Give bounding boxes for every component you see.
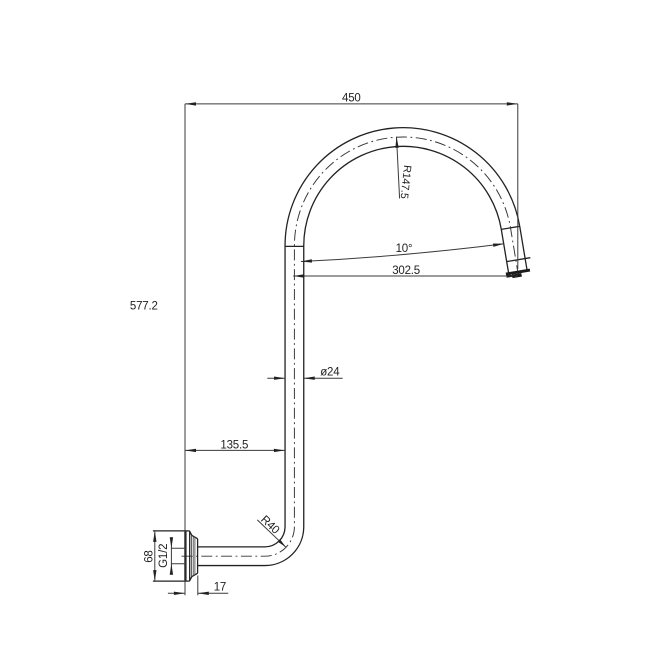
svg-text:450: 450 <box>342 93 361 105</box>
svg-text:G1/2: G1/2 <box>158 544 170 568</box>
svg-text:135.5: 135.5 <box>220 439 248 451</box>
svg-text:302.5: 302.5 <box>392 265 420 277</box>
svg-text:577.2: 577.2 <box>130 301 158 313</box>
svg-text:68: 68 <box>143 550 155 562</box>
svg-text:17: 17 <box>214 581 226 593</box>
svg-text:10°: 10° <box>396 243 413 255</box>
svg-text:ø24: ø24 <box>320 366 340 378</box>
